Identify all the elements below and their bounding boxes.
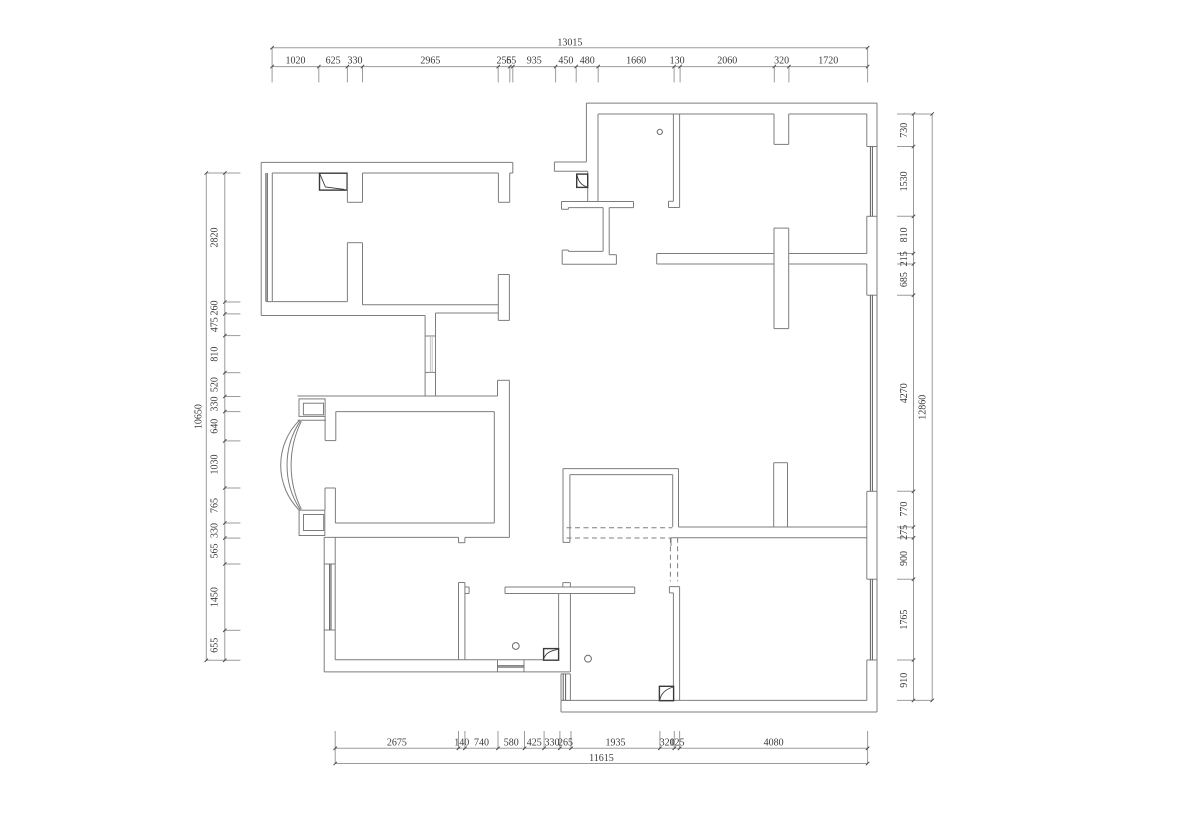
svg-text:1020: 1020 bbox=[285, 56, 305, 67]
svg-text:640: 640 bbox=[210, 419, 221, 434]
svg-text:900: 900 bbox=[899, 551, 910, 566]
svg-text:330: 330 bbox=[347, 56, 362, 67]
svg-text:330: 330 bbox=[210, 397, 221, 412]
svg-text:770: 770 bbox=[899, 502, 910, 517]
svg-text:260: 260 bbox=[210, 300, 221, 315]
svg-text:1935: 1935 bbox=[605, 737, 625, 748]
svg-text:580: 580 bbox=[504, 737, 519, 748]
svg-text:12860: 12860 bbox=[918, 395, 929, 420]
svg-text:910: 910 bbox=[899, 673, 910, 688]
svg-text:130: 130 bbox=[670, 56, 685, 67]
svg-text:1765: 1765 bbox=[899, 610, 910, 630]
svg-text:1660: 1660 bbox=[626, 56, 646, 67]
svg-text:1450: 1450 bbox=[210, 587, 221, 607]
svg-text:935: 935 bbox=[527, 56, 542, 67]
svg-text:13015: 13015 bbox=[557, 37, 582, 48]
svg-text:655: 655 bbox=[210, 638, 221, 653]
svg-text:4270: 4270 bbox=[899, 383, 910, 403]
svg-text:740: 740 bbox=[474, 737, 489, 748]
svg-text:765: 765 bbox=[210, 498, 221, 513]
svg-text:215: 215 bbox=[899, 251, 910, 266]
svg-text:65: 65 bbox=[506, 56, 516, 67]
svg-text:475: 475 bbox=[210, 317, 221, 332]
svg-text:11615: 11615 bbox=[589, 753, 614, 764]
svg-text:425: 425 bbox=[527, 737, 542, 748]
svg-text:520: 520 bbox=[210, 377, 221, 392]
svg-text:140: 140 bbox=[454, 737, 469, 748]
svg-text:2060: 2060 bbox=[717, 56, 737, 67]
svg-text:450: 450 bbox=[558, 56, 573, 67]
svg-text:730: 730 bbox=[899, 123, 910, 138]
svg-text:625: 625 bbox=[326, 56, 341, 67]
svg-text:810: 810 bbox=[899, 227, 910, 242]
svg-text:2675: 2675 bbox=[387, 737, 407, 748]
svg-text:1530: 1530 bbox=[899, 171, 910, 191]
svg-text:2965: 2965 bbox=[420, 56, 440, 67]
svg-text:10650: 10650 bbox=[194, 404, 205, 429]
svg-text:810: 810 bbox=[210, 347, 221, 362]
svg-text:685: 685 bbox=[899, 272, 910, 287]
svg-text:480: 480 bbox=[580, 56, 595, 67]
svg-text:320: 320 bbox=[774, 56, 789, 67]
svg-text:125: 125 bbox=[669, 737, 684, 748]
svg-text:275: 275 bbox=[899, 525, 910, 540]
svg-text:2820: 2820 bbox=[210, 228, 221, 248]
svg-text:330: 330 bbox=[210, 523, 221, 538]
svg-text:265: 265 bbox=[558, 737, 573, 748]
svg-text:1030: 1030 bbox=[210, 454, 221, 474]
svg-text:4080: 4080 bbox=[764, 737, 784, 748]
svg-text:1720: 1720 bbox=[818, 56, 838, 67]
svg-text:565: 565 bbox=[210, 544, 221, 559]
